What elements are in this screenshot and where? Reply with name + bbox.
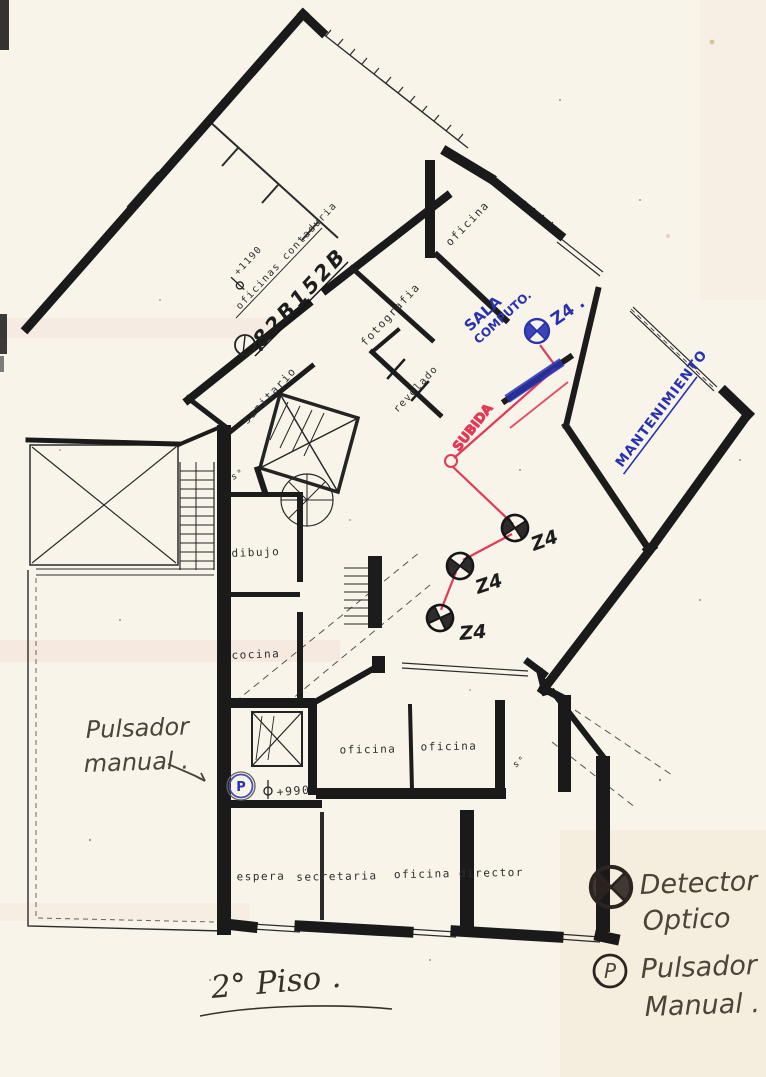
legend-pulsador-line1: Pulsador [640,950,759,985]
pulsador-note-line2: manual . [83,746,189,778]
legend-detector-line2: Optico [642,903,731,937]
legend-pushbutton-letter: P [604,959,617,983]
room-label-dibujo: dibujo [231,545,280,560]
legend-pulsador-line2: Manual . [644,988,760,1023]
room-label-oficina-director: oficina director [394,866,524,881]
scanned-floor-plan: oficinas contaduria oficina fotografia r… [0,0,766,1077]
room-label-oficina-right: oficina [420,740,477,754]
room-label-secretaria: secretaria [296,869,377,883]
room-label-cocina: cocina [231,647,280,662]
zone-label-3: Z4 [458,621,488,645]
room-label-oficina-left: oficina [339,743,396,757]
legend-detector-line1: Detector [639,866,760,901]
room-label-espera: espera [236,870,285,884]
plan-pushbutton-letter: P [236,780,246,795]
pulsador-note-line1: Pulsador [85,712,191,744]
elevation-lower-text: +990 [276,783,311,799]
